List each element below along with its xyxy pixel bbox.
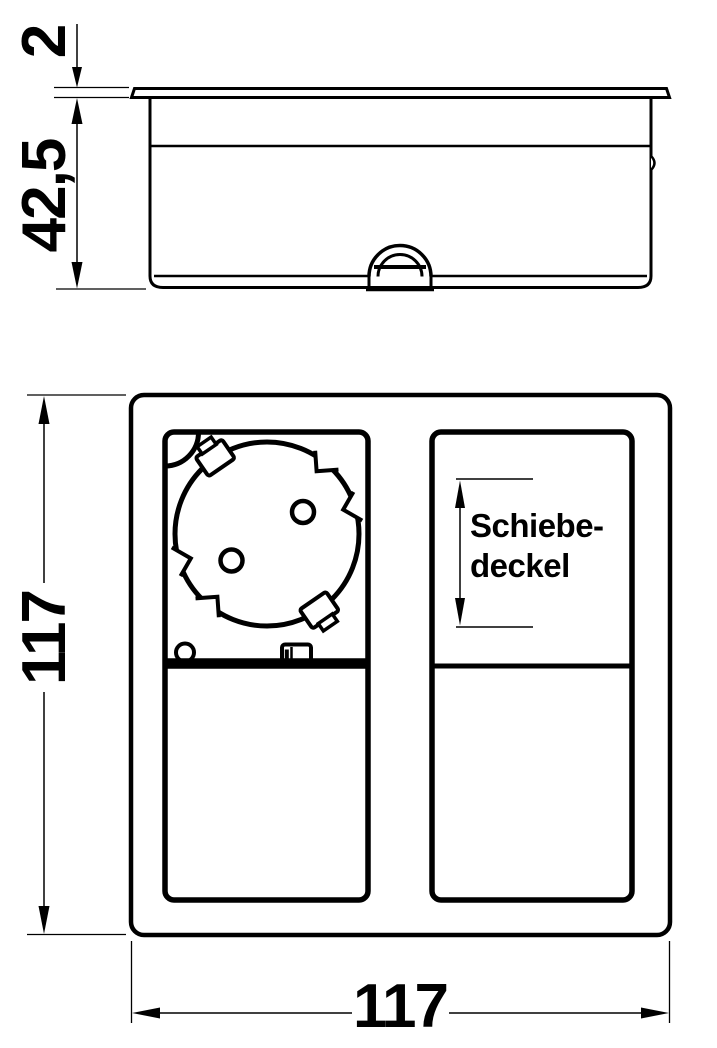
pin-hole: [292, 501, 314, 523]
socket-module: [165, 432, 368, 900]
dimension-label-cover-thickness: 2: [9, 2, 79, 82]
dimension-label-body-height: 42,5: [9, 111, 79, 281]
sliding-cover-label-line1: Schiebe-: [470, 506, 604, 546]
top-view: [131, 395, 670, 935]
drawing-linework: [0, 0, 717, 1048]
pin-hole: [221, 550, 243, 572]
technical-drawing: 2 42,5 117 117 Schiebe- deckel: [0, 0, 717, 1048]
dimension-label-overall-width: 117: [300, 971, 500, 1041]
sliding-cover-label-line2: deckel: [470, 546, 604, 586]
side-view: [132, 89, 670, 290]
dimension-label-overall-height: 117: [9, 563, 79, 713]
sliding-cover-label: Schiebe- deckel: [470, 506, 604, 586]
flange: [132, 89, 670, 98]
